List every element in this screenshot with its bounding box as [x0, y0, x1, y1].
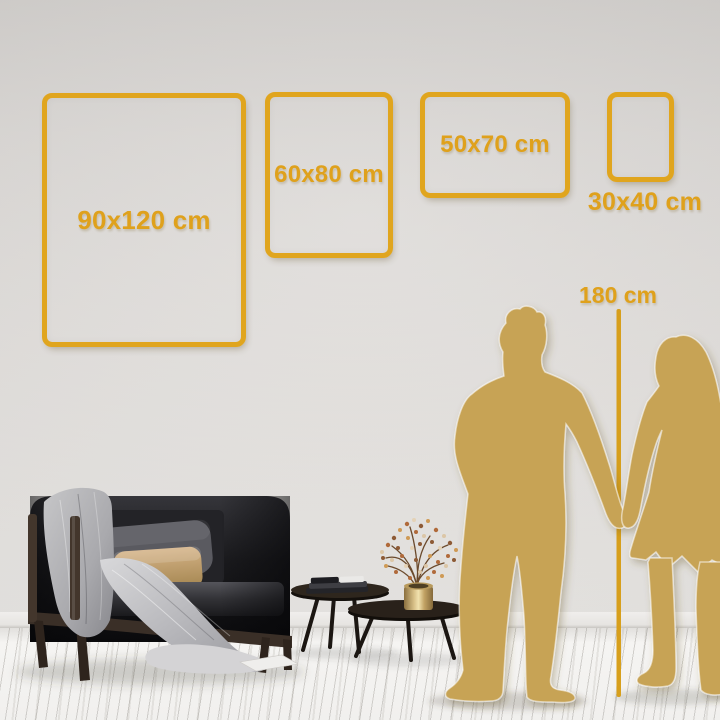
branch-stems [386, 527, 448, 587]
man-silhouette [446, 306, 627, 702]
frame-50x70: 50x70 cm [420, 92, 570, 198]
small-table-legs [303, 597, 359, 652]
frame-30x40 [607, 92, 674, 182]
woman-back-leg [696, 562, 720, 695]
couple-silhouettes [446, 306, 720, 702]
floor-shadows [15, 647, 720, 710]
size-guide-image: 90x120 cm 60x80 cm 50x70 cm 30x40 cm 180… [0, 0, 720, 720]
frame-90x120: 90x120 cm [42, 93, 246, 347]
sofa [28, 488, 298, 681]
frame-60x80: 60x80 cm [265, 92, 393, 258]
nesting-coffee-tables [291, 518, 466, 660]
dried-flowers [380, 518, 458, 580]
woman-silhouette [622, 335, 720, 695]
frame-60x80-label: 60x80 cm [274, 161, 384, 189]
brass-vase-with-dried-flowers [380, 518, 458, 610]
woman-front-leg [637, 558, 676, 687]
height-marker-label: 180 cm [565, 282, 671, 309]
frame-30x40-label: 30x40 cm [585, 188, 705, 217]
frame-50x70-label: 50x70 cm [440, 131, 550, 159]
stacked-books [306, 576, 369, 594]
sofa-arm-right-shade [220, 496, 290, 642]
vase-opening [409, 584, 429, 589]
frame-90x120-label: 90x120 cm [77, 205, 210, 236]
